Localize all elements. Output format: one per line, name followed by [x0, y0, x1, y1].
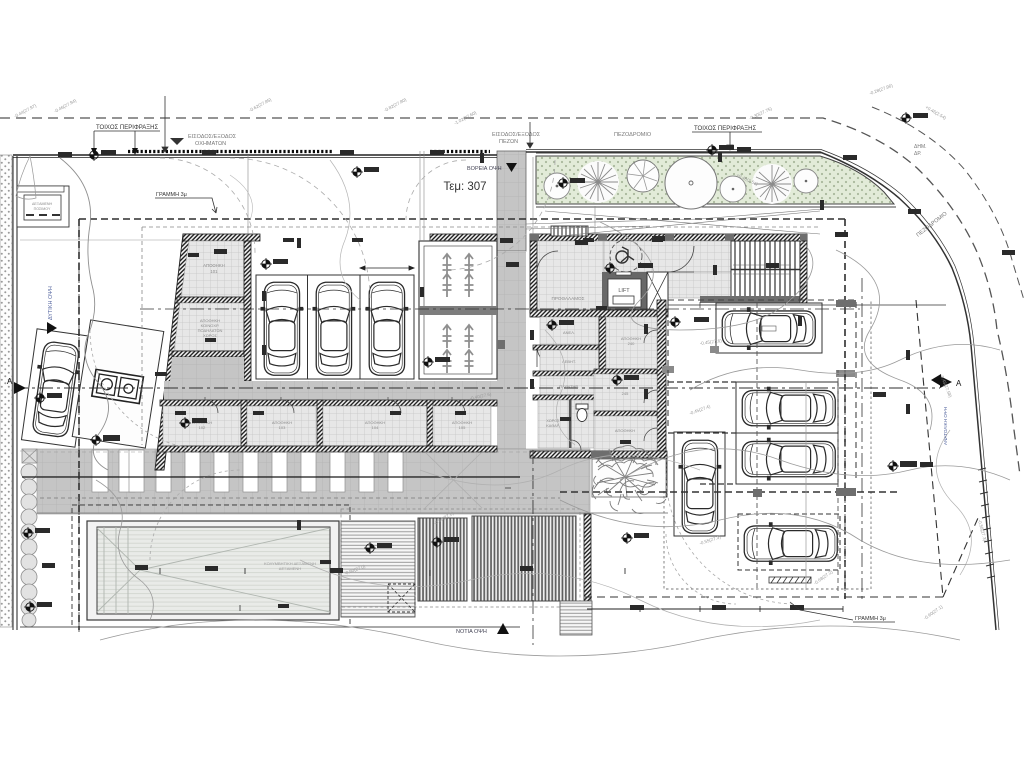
svg-text:ΕΙΣΟΔΟΣ/ΕΞΟΔΟΣ: ΕΙΣΟΔΟΣ/ΕΞΟΔΟΣ [492, 132, 541, 138]
svg-text:ΑΝΕΛ.: ΑΝΕΛ. [563, 330, 575, 335]
svg-text:ΔΕΞΑΜΕΝΗ: ΔΕΞΑΜΕΝΗ [32, 202, 53, 206]
svg-text:Τεμ: 307: Τεμ: 307 [443, 181, 486, 193]
svg-text:245: 245 [622, 391, 629, 396]
svg-text:ΠΡΟΘΑΛΑΜΟΣ: ΠΡΟΘΑΛΑΜΟΣ [552, 296, 585, 301]
svg-text:ΚΑΘΑΡ.: ΚΑΘΑΡ. [546, 424, 560, 428]
svg-text:ΔΥΤΙΚΗ ΟΨΗ: ΔΥΤΙΚΗ ΟΨΗ [48, 286, 54, 320]
svg-text:ΔΡ.: ΔΡ. [914, 151, 921, 157]
svg-text:LIFT: LIFT [618, 288, 630, 294]
svg-text:105: 105 [459, 425, 466, 430]
svg-text:ΟΧΗΜΑΤΩΝ: ΟΧΗΜΑΤΩΝ [195, 141, 226, 147]
svg-text:ΑΝΑΤΟΛΙΚΗ ΟΨΗ: ΑΝΑΤΟΛΙΚΗ ΟΨΗ [943, 407, 948, 445]
svg-text:A: A [7, 377, 13, 386]
svg-text:ΓΡΑΜΜΗ 3μ: ΓΡΑΜΜΗ 3μ [156, 192, 187, 198]
svg-text:ΠΕΖΟΔΡΟΜΙΟ: ΠΕΖΟΔΡΟΜΙΟ [614, 132, 652, 138]
svg-text:ΔΗΜ.: ΔΗΜ. [914, 144, 927, 150]
svg-text:240: 240 [628, 341, 635, 346]
svg-text:ΑΠΟΘΗΚΗ: ΑΠΟΘΗΚΗ [615, 428, 635, 433]
svg-text:103: 103 [279, 425, 286, 430]
svg-text:ΕΙΣΟΔΟΣ/ΕΞΟΔΟΣ: ΕΙΣΟΔΟΣ/ΕΞΟΔΟΣ [188, 134, 237, 140]
svg-text:A: A [956, 379, 962, 388]
svg-text:ΒΟΡΕΙΑ ΟΨΗ: ΒΟΡΕΙΑ ΟΨΗ [467, 166, 502, 172]
svg-text:101: 101 [210, 269, 218, 274]
svg-text:104: 104 [372, 425, 379, 430]
svg-text:ΑΠΟΘΗΚΗ: ΑΠΟΘΗΚΗ [203, 263, 225, 268]
svg-text:ΧΩΡΟΣ: ΧΩΡΟΣ [546, 419, 560, 423]
svg-text:ΔΕΞΑΜΕΝΗ: ΔΕΞΑΜΕΝΗ [279, 566, 301, 571]
svg-text:ΓΡΑΜΜΗ 3μ: ΓΡΑΜΜΗ 3μ [855, 616, 886, 622]
svg-text:ΠΕΖΩΝ: ΠΕΖΩΝ [499, 139, 518, 145]
svg-text:ΠΟΣΙΜΟΥ: ΠΟΣΙΜΟΥ [34, 207, 51, 211]
svg-text:ΧΩΡΟΣ: ΧΩΡΟΣ [203, 333, 217, 338]
svg-text:102: 102 [199, 425, 206, 430]
svg-text:ΝΟΤΙΑ ΟΨΗ: ΝΟΤΙΑ ΟΨΗ [456, 629, 487, 635]
svg-text:ΤΟΙΧΟΣ ΠΕΡΙΦΡΑΞΗΣ: ΤΟΙΧΟΣ ΠΕΡΙΦΡΑΞΗΣ [96, 125, 159, 131]
svg-text:ΤΟΙΧΟΣ ΠΕΡΙΦΡΑΞΗΣ: ΤΟΙΧΟΣ ΠΕΡΙΦΡΑΞΗΣ [694, 126, 757, 132]
